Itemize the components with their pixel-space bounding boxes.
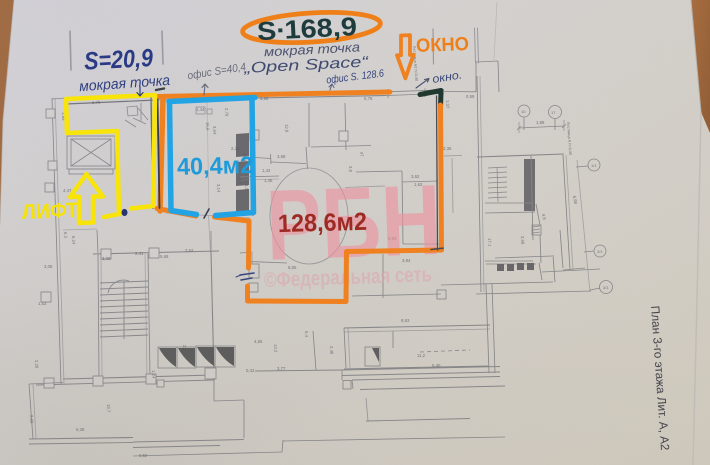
svg-text:S=20,9: S=20,9 [83,44,153,76]
svg-text:ЛИФТ: ЛИФТ [22,199,79,224]
svg-text:40,4м2: 40,4м2 [177,152,254,181]
svg-text:128,6м2: 128,6м2 [278,208,368,238]
svg-text:ОКНО: ОКНО [416,34,470,57]
